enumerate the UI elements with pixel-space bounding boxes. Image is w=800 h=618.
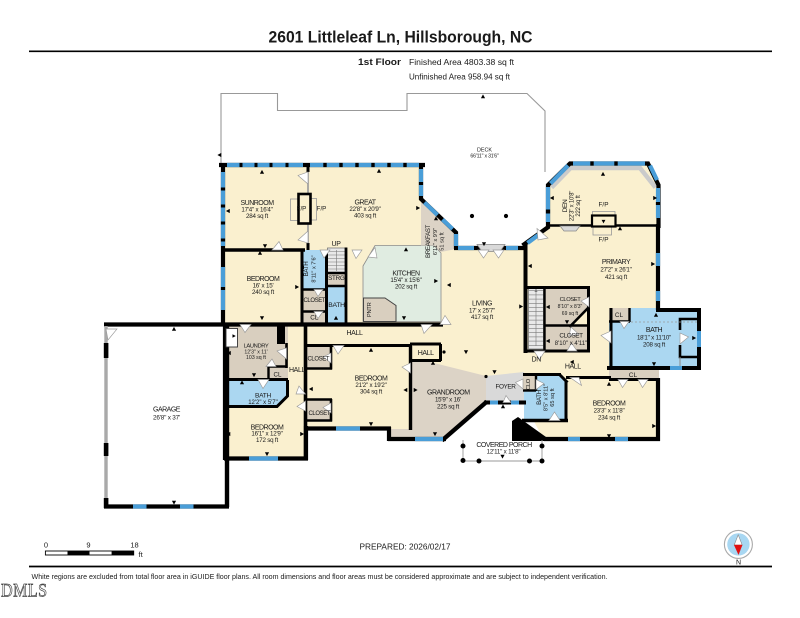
svg-text:51 sq ft: 51 sq ft <box>440 232 446 251</box>
svg-text:65 sq ft: 65 sq ft <box>550 388 556 407</box>
svg-text:CLOSET: CLOSET <box>559 333 583 340</box>
svg-text:White regions are excluded fro: White regions are excluded from total fl… <box>32 572 608 581</box>
svg-text:69 sq ft: 69 sq ft <box>562 311 579 317</box>
svg-text:208 sq ft: 208 sq ft <box>643 342 665 349</box>
svg-text:F/P: F/P <box>599 237 609 244</box>
svg-text:1st Floor: 1st Floor <box>358 57 401 68</box>
svg-text:66'11" x 31'6": 66'11" x 31'6" <box>470 153 499 159</box>
svg-text:F/P: F/P <box>599 202 609 209</box>
svg-text:234 sq ft: 234 sq ft <box>598 415 620 422</box>
svg-text:HALL: HALL <box>418 350 434 357</box>
svg-text:22'3" x 10'8": 22'3" x 10'8" <box>570 191 576 221</box>
svg-text:0: 0 <box>44 541 48 550</box>
svg-text:202 sq ft: 202 sq ft <box>395 284 417 291</box>
svg-text:CL: CL <box>629 372 638 379</box>
svg-text:UP: UP <box>331 241 341 248</box>
svg-text:CLOSET: CLOSET <box>560 297 582 303</box>
svg-text:N: N <box>736 560 741 567</box>
svg-text:BATH: BATH <box>255 393 271 400</box>
svg-text:CL: CL <box>615 312 624 319</box>
svg-text:8'10" x 8'3": 8'10" x 8'3" <box>558 304 583 310</box>
svg-text:HALL: HALL <box>565 364 581 371</box>
svg-text:DN: DN <box>532 357 542 364</box>
svg-text:F/P: F/P <box>317 206 327 213</box>
svg-text:GRANDROOM: GRANDROOM <box>427 390 470 397</box>
svg-text:BATH: BATH <box>646 327 663 334</box>
svg-text:BATH: BATH <box>328 302 345 309</box>
svg-text:421 sq ft: 421 sq ft <box>605 274 627 281</box>
svg-text:9: 9 <box>86 541 90 550</box>
svg-text:225 sq ft: 225 sq ft <box>437 404 459 411</box>
svg-text:304 sq ft: 304 sq ft <box>360 389 382 396</box>
svg-text:18'1" x 11'10": 18'1" x 11'10" <box>637 335 671 342</box>
svg-text:PNTR: PNTR <box>367 302 373 317</box>
svg-text:240 sq ft: 240 sq ft <box>252 289 274 296</box>
svg-text:12'2" x 5'7": 12'2" x 5'7" <box>248 400 278 406</box>
svg-text:CLOSET: CLOSET <box>307 357 329 363</box>
svg-text:18: 18 <box>130 541 138 550</box>
svg-text:BATH: BATH <box>303 262 310 277</box>
svg-text:FOYER: FOYER <box>495 384 516 391</box>
svg-text:PREPARED: 2026/02/17: PREPARED: 2026/02/17 <box>360 542 451 552</box>
svg-text:CLOSET: CLOSET <box>308 411 330 417</box>
svg-text:PRIMARY: PRIMARY <box>602 259 631 266</box>
svg-text:F/P: F/P <box>297 206 307 213</box>
svg-text:27'2" x 26'1": 27'2" x 26'1" <box>600 267 631 274</box>
svg-text:12'11" x 11'8": 12'11" x 11'8" <box>487 448 521 455</box>
svg-text:CLOSET: CLOSET <box>303 298 325 304</box>
svg-text:23'3" x 11'8": 23'3" x 11'8" <box>594 408 625 415</box>
svg-text:CLO: CLO <box>526 378 532 390</box>
svg-text:403 sq ft: 403 sq ft <box>354 212 376 219</box>
svg-text:222 sq ft: 222 sq ft <box>576 195 582 217</box>
svg-text:417 sq ft: 417 sq ft <box>471 314 493 321</box>
svg-text:BREAKFAST: BREAKFAST <box>425 224 432 257</box>
svg-text:103 sq ft: 103 sq ft <box>246 355 266 361</box>
svg-text:6'11" x 9'9": 6'11" x 9'9" <box>433 228 439 255</box>
svg-text:CL: CL <box>274 372 282 379</box>
svg-text:DMLS: DMLS <box>1 582 48 602</box>
svg-text:BATH: BATH <box>536 390 543 405</box>
svg-text:2601 Littleleaf Ln, Hillsborou: 2601 Littleleaf Ln, Hillsborough, NC <box>269 28 533 47</box>
svg-text:STRG: STRG <box>328 275 345 282</box>
svg-text:Finished Area 4803.38 sq ft: Finished Area 4803.38 sq ft <box>409 57 515 67</box>
svg-text:8'5" x 8'11": 8'5" x 8'11" <box>544 384 550 411</box>
svg-text:CL: CL <box>310 314 319 321</box>
svg-text:8'11" x 7'6": 8'11" x 7'6" <box>312 255 318 282</box>
svg-text:DEN: DEN <box>562 199 569 212</box>
svg-text:8'10" x 4'11": 8'10" x 4'11" <box>555 341 587 347</box>
svg-text:172 sq ft: 172 sq ft <box>256 437 278 444</box>
svg-text:HALL: HALL <box>289 367 305 374</box>
svg-text:26'8" x 37': 26'8" x 37' <box>153 414 180 421</box>
svg-text:BEDROOM: BEDROOM <box>593 401 626 408</box>
svg-text:284 sq ft: 284 sq ft <box>246 213 268 220</box>
svg-text:GARAGE: GARAGE <box>153 407 181 414</box>
svg-text:Unfinished Area 958.94 sq ft: Unfinished Area 958.94 sq ft <box>409 71 511 81</box>
svg-text:HALL: HALL <box>347 330 363 337</box>
